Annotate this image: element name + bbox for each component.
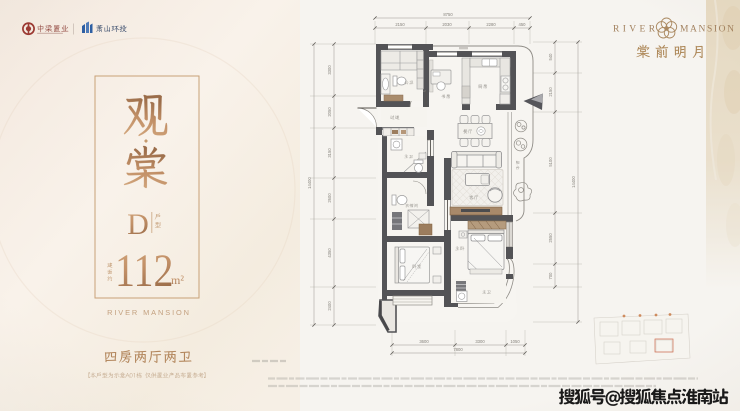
svg-text:2150: 2150 [548, 87, 553, 97]
svg-text:8750: 8750 [443, 12, 453, 17]
svg-text:1050: 1050 [510, 339, 520, 344]
svg-text:14400: 14400 [571, 176, 576, 188]
svg-text:2600: 2600 [327, 193, 332, 203]
svg-text:2280: 2280 [486, 22, 496, 27]
svg-text:2550: 2550 [548, 233, 553, 243]
svg-text:3600: 3600 [419, 339, 429, 344]
svg-text:m²: m² [171, 273, 184, 287]
svg-text:2030: 2030 [442, 22, 452, 27]
svg-text:5100: 5100 [548, 157, 553, 167]
svg-text:3300: 3300 [327, 65, 332, 75]
svg-text:2400: 2400 [327, 301, 332, 311]
svg-text:540: 540 [548, 53, 553, 61]
svg-text:7800: 7800 [453, 347, 463, 352]
svg-text:MANSION: MANSION [680, 25, 736, 35]
svg-text:4350: 4350 [327, 248, 332, 258]
svg-text:112: 112 [115, 245, 173, 297]
svg-text:2050: 2050 [327, 107, 332, 117]
svg-text:700: 700 [548, 272, 553, 280]
svg-text:RIVER: RIVER [613, 25, 659, 35]
svg-text:2150: 2150 [395, 22, 405, 27]
svg-text:14400: 14400 [307, 177, 312, 189]
svg-text:D: D [127, 208, 149, 241]
svg-text:3300: 3300 [475, 339, 485, 344]
svg-text:RIVER MANSION: RIVER MANSION [107, 308, 191, 317]
svg-text:3150: 3150 [327, 148, 332, 158]
svg-text:450: 450 [519, 22, 527, 27]
